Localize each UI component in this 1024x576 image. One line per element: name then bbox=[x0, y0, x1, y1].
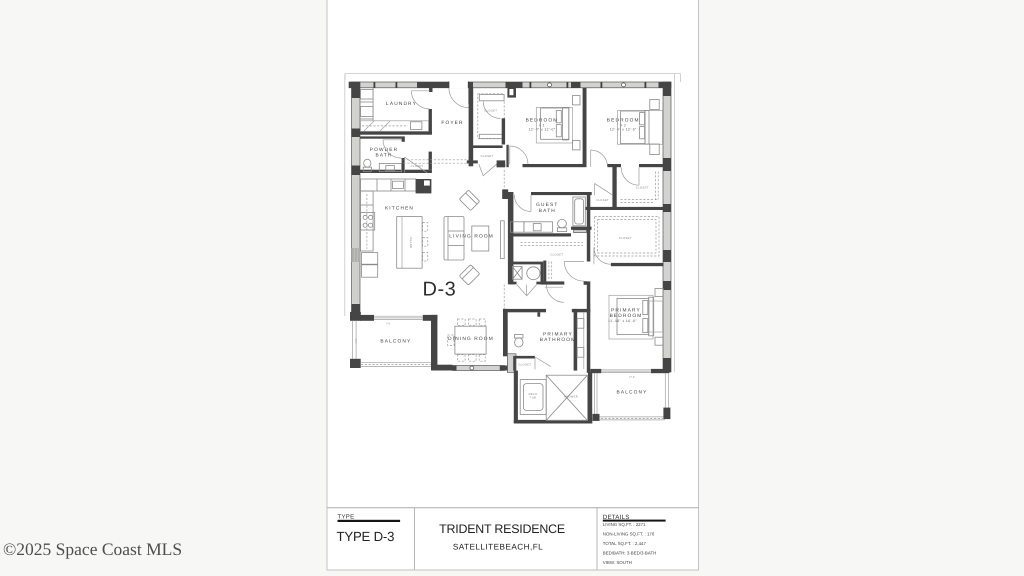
svg-text:TYPE D-3: TYPE D-3 bbox=[337, 529, 395, 544]
svg-text:BED/BATH: 3-BED/3-BATH: BED/BATH: 3-BED/3-BATH bbox=[603, 551, 657, 556]
svg-text:NON-LIVING SQ.FT. : 176: NON-LIVING SQ.FT. : 176 bbox=[603, 532, 655, 537]
svg-text:FOYER: FOYER bbox=[441, 120, 463, 126]
svg-text:D-3: D-3 bbox=[423, 279, 457, 301]
svg-text:12'-4" x 12'-0": 12'-4" x 12'-0" bbox=[529, 128, 556, 132]
svg-text:BEDROOM: BEDROOM bbox=[607, 117, 640, 123]
svg-text:17'-8": 17'-8" bbox=[629, 376, 635, 379]
svg-text:CLOSET: CLOSET bbox=[484, 109, 497, 112]
svg-text:POWDER: POWDER bbox=[370, 147, 399, 153]
svg-text:BEDROOM: BEDROOM bbox=[526, 117, 559, 123]
svg-text:PRIMARY: PRIMARY bbox=[543, 332, 573, 338]
svg-text:BATHROOM: BATHROOM bbox=[540, 337, 577, 343]
svg-text:TOTAL SQ.FT. : 2,447: TOTAL SQ.FT. : 2,447 bbox=[603, 541, 647, 546]
svg-text:SHOWER: SHOWER bbox=[564, 395, 578, 398]
svg-text:12'-4" x 12'-0": 12'-4" x 12'-0" bbox=[610, 128, 637, 132]
svg-text:CLOSET: CLOSET bbox=[619, 237, 632, 240]
svg-text:11'-10" x 16'-6": 11'-10" x 16'-6" bbox=[608, 319, 637, 323]
svg-text:CLOSET: CLOSET bbox=[411, 165, 424, 168]
svg-text:TYPE: TYPE bbox=[338, 513, 355, 520]
svg-text:BATH: BATH bbox=[375, 153, 392, 159]
svg-text:ISLAND: ISLAND bbox=[409, 237, 412, 249]
svg-text:SATELLITEBEACH,FL: SATELLITEBEACH,FL bbox=[453, 542, 543, 551]
svg-text:CLOSET: CLOSET bbox=[481, 155, 494, 158]
svg-text:BALCONY: BALCONY bbox=[380, 338, 411, 344]
svg-text:VIEW: SOUTH: VIEW: SOUTH bbox=[603, 560, 632, 565]
svg-text:7'-2": 7'-2" bbox=[355, 338, 358, 343]
svg-text:CLOSET: CLOSET bbox=[596, 199, 609, 202]
svg-text:PRIMARY: PRIMARY bbox=[611, 307, 641, 313]
svg-text:BALCONY: BALCONY bbox=[617, 390, 648, 396]
svg-text:LAUNDRY: LAUNDRY bbox=[386, 101, 417, 107]
svg-text:TUB: TUB bbox=[530, 396, 536, 399]
svg-text:TRIDENT RESIDENCE: TRIDENT RESIDENCE bbox=[439, 522, 565, 536]
svg-text:CLOSET: CLOSET bbox=[636, 187, 649, 190]
svg-text:KITCHEN: KITCHEN bbox=[385, 205, 414, 211]
svg-text:©2025 Space Coast MLS: ©2025 Space Coast MLS bbox=[3, 539, 182, 559]
svg-text:7'-8": 7'-8" bbox=[386, 323, 391, 326]
svg-text:BATH: BATH bbox=[539, 208, 556, 214]
svg-text:GUEST: GUEST bbox=[536, 202, 558, 208]
svg-text:CLOSET: CLOSET bbox=[550, 253, 563, 256]
svg-text:CLOSET: CLOSET bbox=[518, 363, 531, 366]
svg-text:LIVING SQ.FT. : 2271: LIVING SQ.FT. : 2271 bbox=[603, 522, 646, 527]
